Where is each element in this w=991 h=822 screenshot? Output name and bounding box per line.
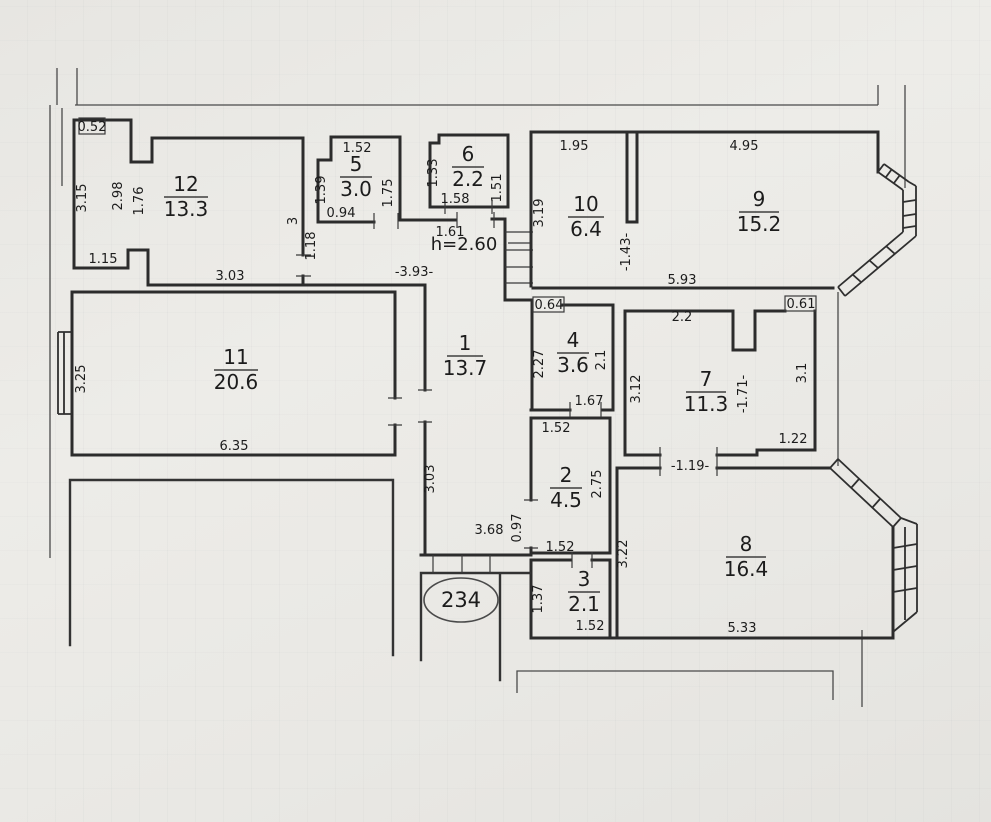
window-room8-bay [830,459,917,632]
room-number: 2 [560,463,573,487]
room-6-label: 6 2.2 [452,142,484,191]
dim-label: 5.33 [728,621,757,636]
dim-label: 0.97 [510,514,525,543]
room-area: 4.5 [550,488,582,512]
dim-label: 1.37 [531,585,546,614]
floorplan-sheet: 234 h=2.60 1 13.7 2 4.5 3 2.1 4 3.6 5 3 [0,0,991,822]
dim-label: 3.22 [616,540,631,569]
room-number: 6 [462,142,475,166]
room-number: 3 [578,567,591,591]
dim-label: 3.25 [74,365,89,394]
dim-label: 2.2 [672,310,693,325]
dim-label: 6.35 [220,439,249,454]
dim-label: -1.19- [671,459,710,474]
room-5-label: 5 3.0 [340,152,372,201]
room-area: 2.2 [452,167,484,191]
room-8-label: 8 16.4 [724,532,769,581]
room-area: 6.4 [570,217,602,241]
dim-label: 1.33 [426,159,441,188]
room-area: 3.0 [340,177,372,201]
dim-label: 1.18 [304,232,319,261]
room-11-label: 11 20.6 [214,345,259,394]
dim-label: 3.03 [423,465,438,494]
window-room11 [58,332,72,414]
dim-label: 0.52 [78,120,107,135]
dim-label: 1.52 [576,619,605,634]
room-number: 12 [173,172,198,196]
dim-label: 1.52 [343,141,372,156]
window-room9-bay [838,164,916,296]
room-number: 8 [740,532,753,556]
dim-label: 1.75 [381,179,396,208]
dim-label: 3.19 [532,199,547,228]
dim-label: 1.52 [546,540,575,555]
room-number: 1 [459,331,472,355]
room-area: 3.6 [557,353,589,377]
dim-label: 2.27 [532,350,547,379]
dim-label: 3.12 [629,375,644,404]
dim-label: 3.03 [216,269,245,284]
room-3-label: 3 2.1 [568,567,600,616]
dim-label: 2.98 [111,182,126,211]
dim-label: 1.61 [436,225,465,240]
room-area: 13.3 [164,197,209,221]
dim-label: 1.95 [560,139,589,154]
floorplan-drawing: 234 h=2.60 1 13.7 2 4.5 3 2.1 4 3.6 5 3 [0,0,991,822]
dim-label: -1.43- [619,233,634,272]
room-area: 15.2 [737,212,782,236]
dim-label: 2.75 [590,470,605,499]
room-number: 7 [700,367,713,391]
room-7-label: 7 11.3 [684,367,729,416]
dim-label: 1.39 [314,176,329,205]
dim-label: 4.95 [730,139,759,154]
dim-label: 2.1 [594,350,609,371]
room-number: 9 [753,187,766,211]
room-area: 20.6 [214,370,259,394]
room-area: 11.3 [684,392,729,416]
dim-label: 1.22 [779,432,808,447]
apartment-number: 234 [441,588,481,612]
dim-label: 1.58 [441,192,470,207]
dim-label: 3.68 [475,523,504,538]
dim-label: 5.93 [668,273,697,288]
dim-label: 1.67 [575,394,604,409]
dim-label: 3.15 [75,184,90,213]
dim-label: 1.15 [89,252,118,267]
dim-label: 0.61 [787,297,816,312]
room-area: 2.1 [568,592,600,616]
room-1-label: 1 13.7 [443,331,488,380]
dim-label: 1.51 [490,174,505,203]
dim-label: 0.64 [535,298,564,313]
dim-label: 1.76 [132,187,147,216]
room-10-label: 10 6.4 [568,192,604,241]
dim-label: 0.94 [327,206,356,221]
room-area: 16.4 [724,557,769,581]
room-number: 4 [567,328,580,352]
dim-label: -3.93- [395,265,434,280]
room-number: 11 [223,345,248,369]
dim-label: 3.1 [795,363,810,384]
room-4-label: 4 3.6 [557,328,589,377]
apartment-number-stamp: 234 [424,578,498,622]
room-number: 10 [573,192,598,216]
room-area: 13.7 [443,356,488,380]
room-9-label: 9 15.2 [737,187,782,236]
dim-label: 3 [286,217,301,225]
dim-label: -1.71- [736,375,751,414]
room-2-label: 2 4.5 [550,463,582,512]
room-12-label: 12 13.3 [164,172,209,221]
dim-label: 1.52 [542,421,571,436]
